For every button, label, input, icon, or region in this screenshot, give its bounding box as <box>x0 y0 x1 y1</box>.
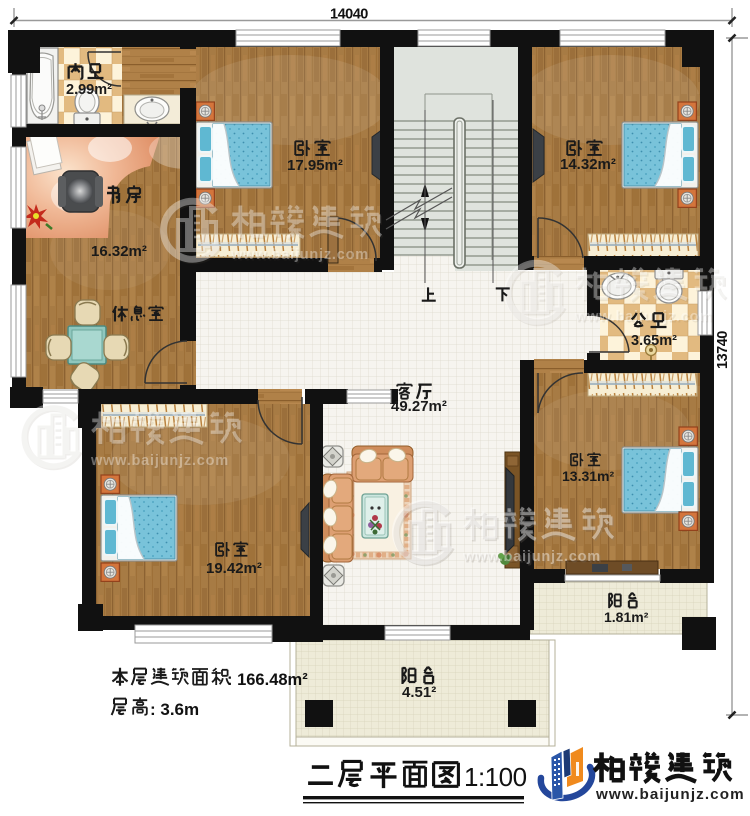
svg-text:: 166.48m²: : 166.48m² <box>227 671 308 689</box>
svg-text:1.81m²: 1.81m² <box>604 609 649 625</box>
svg-text:: 3.6m: : 3.6m <box>150 700 199 719</box>
svg-text:3.65m²: 3.65m² <box>631 333 677 349</box>
svg-text:19.42m²: 19.42m² <box>206 560 262 577</box>
svg-text:14.32m²: 14.32m² <box>560 156 616 173</box>
svg-text:1:100: 1:100 <box>464 762 527 792</box>
svg-text:49.27m²: 49.27m² <box>391 398 447 415</box>
svg-text:www.baijunjz.com: www.baijunjz.com <box>595 786 745 803</box>
svg-text:2.99m²: 2.99m² <box>66 82 112 98</box>
svg-text:14040: 14040 <box>330 7 368 23</box>
svg-text:13740: 13740 <box>715 331 731 369</box>
svg-text:13.31m²: 13.31m² <box>562 468 614 484</box>
svg-text:17.95m²: 17.95m² <box>287 157 343 174</box>
svg-text:4.51²: 4.51² <box>402 684 436 701</box>
svg-text:16.32m²: 16.32m² <box>91 243 147 260</box>
